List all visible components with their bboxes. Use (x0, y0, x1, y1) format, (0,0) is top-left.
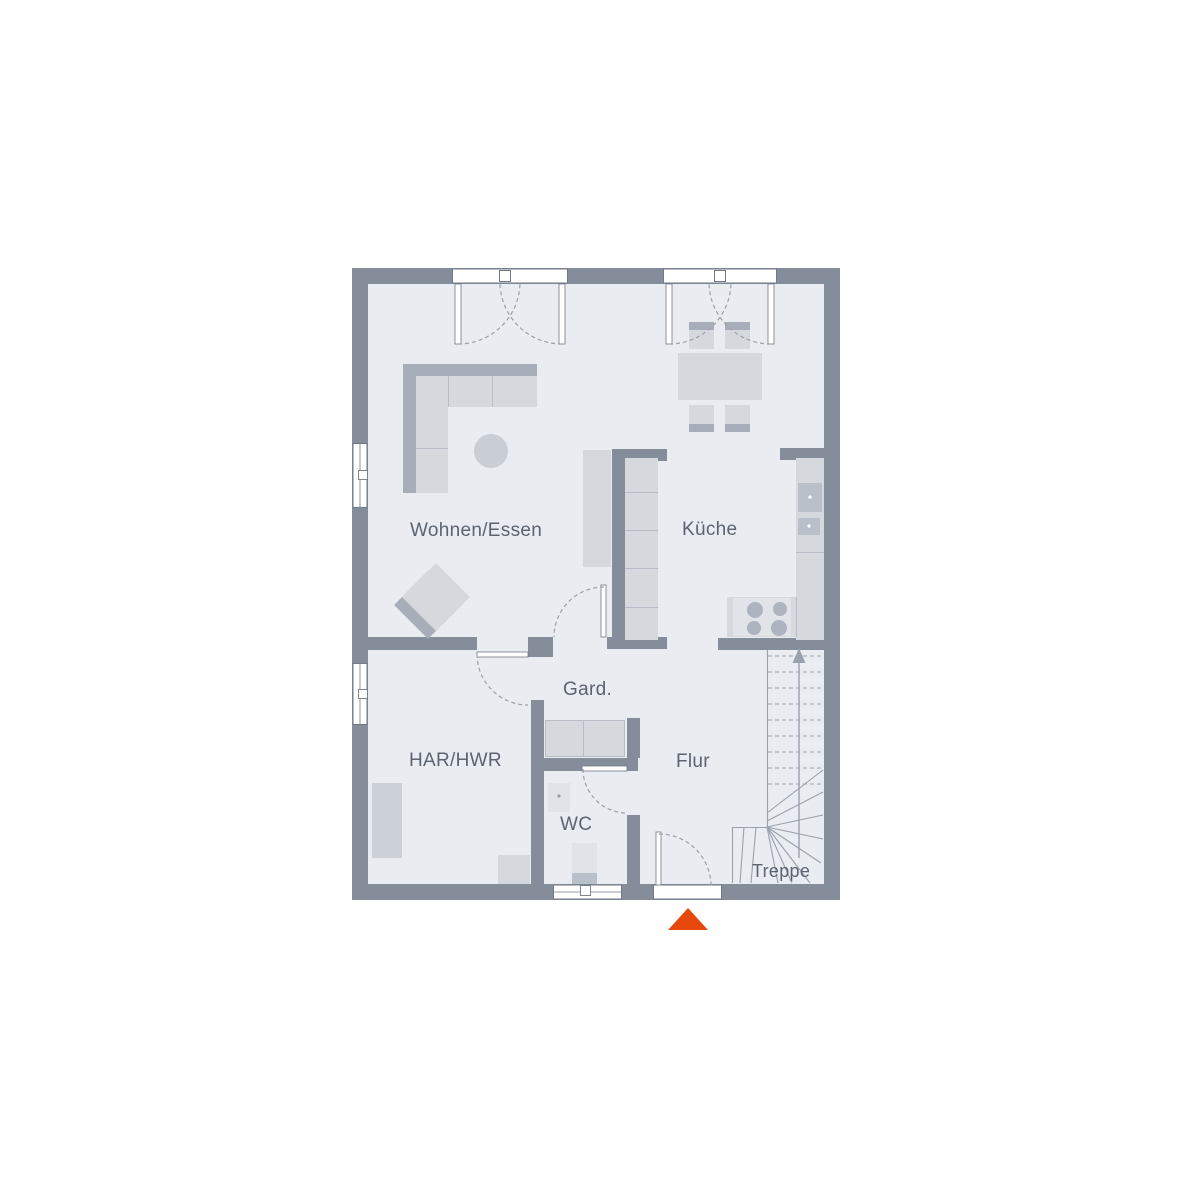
room-label-wc: WC (560, 815, 592, 834)
cooktop (733, 598, 791, 636)
wall-har-wc (531, 700, 544, 884)
outer-wall-right (824, 268, 840, 900)
room-label-gard: Gard. (563, 680, 612, 699)
room-label-treppe: Treppe (752, 862, 810, 880)
wall-stub-gard (528, 637, 553, 657)
sofa-seam (448, 376, 449, 407)
toilet (572, 843, 597, 873)
sofa-seam (492, 376, 493, 407)
washbasin (548, 783, 570, 812)
outer-wall-top (352, 268, 840, 284)
sideboard (583, 450, 611, 567)
chair-back (725, 424, 750, 432)
wardrobe (545, 720, 625, 757)
counter-seam (625, 530, 658, 531)
dining-table (678, 353, 762, 400)
sofa-seats-left (416, 407, 448, 493)
oven (798, 483, 822, 512)
floor-plan: Wohnen/Essen Küche Gard. HAR/HWR WC Flur… (352, 268, 840, 900)
counter-seam (796, 552, 824, 553)
counter-seam (625, 492, 658, 493)
sofa-seats-top (416, 376, 537, 407)
chair-back (725, 322, 750, 330)
counter-seam (796, 597, 797, 637)
sofa-back-left (403, 364, 416, 493)
utility-appliance (498, 855, 530, 884)
floor-plan-canvas: Wohnen/Essen Küche Gard. HAR/HWR WC Flur… (0, 0, 1200, 1200)
side-table (474, 434, 508, 468)
chair-back (689, 322, 714, 330)
outer-wall-left (352, 268, 368, 900)
room-label-har-hwr: HAR/HWR (409, 751, 502, 770)
room-label-wohnen-essen: Wohnen/Essen (410, 521, 542, 540)
kitchen-counter-center (625, 458, 658, 640)
wall-wc-flur (627, 815, 640, 884)
sofa-seam (416, 448, 448, 449)
counter-seam (625, 607, 658, 608)
microwave (798, 518, 820, 535)
wall-wohnen-kueche (612, 450, 625, 637)
entrance-arrow-icon (668, 908, 708, 930)
sofa-back-top (403, 364, 537, 376)
chair-back (689, 424, 714, 432)
wall-gard-wc (531, 758, 638, 771)
room-label-kueche: Küche (682, 520, 737, 539)
wall-stub-closet (627, 718, 640, 758)
wall-wohnen-har (368, 637, 477, 650)
outer-wall-bottom (352, 884, 840, 900)
counter-seam (625, 568, 658, 569)
room-label-flur: Flur (676, 752, 710, 771)
wardrobe-seam (583, 720, 584, 757)
utility-cabinet (372, 783, 402, 858)
toilet-base (572, 873, 597, 884)
